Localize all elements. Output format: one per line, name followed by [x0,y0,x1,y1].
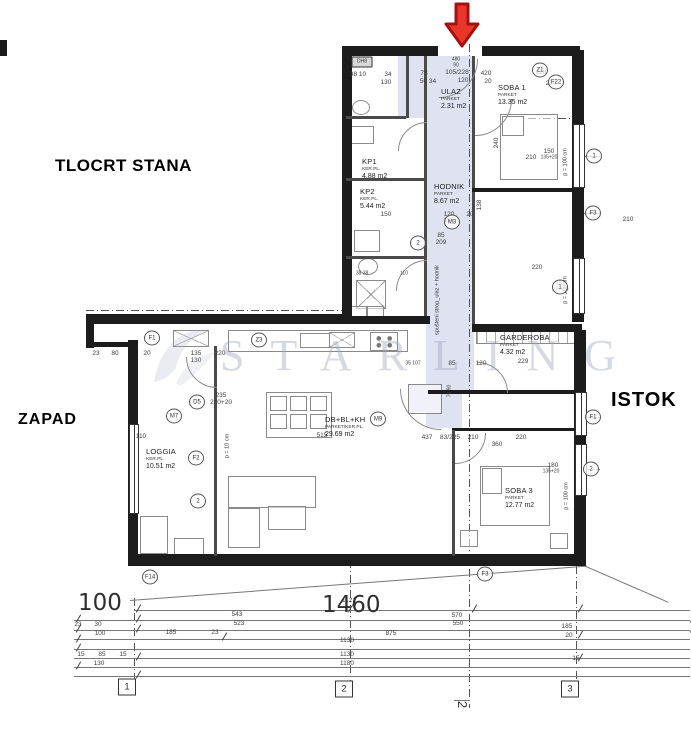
dimension-label: 15 [77,652,84,659]
wall [0,40,7,56]
dimension-label: 1130 [340,652,354,659]
room-name: LOGGIA [146,448,176,456]
dim-tick [136,652,141,660]
dimension-label: 210 [526,155,537,162]
wall [342,316,430,324]
plan-line [74,620,690,621]
dimension-label: 20 [466,212,473,219]
room-area: 13.35 m2 [498,99,527,106]
furniture [352,100,370,115]
plan-marker: F2 [188,451,204,466]
room-label: KP1KER.PL.4.88 m2 [362,158,387,180]
wall [342,46,438,56]
dimension-label: 210 [468,435,479,442]
furniture [140,516,168,554]
dimension-label: 120 [458,78,469,85]
grid-marker: 3 [561,681,579,698]
furniture [356,280,386,309]
section-mark: 2 [455,701,470,708]
furniture [228,476,316,508]
dimension-label: 360 [492,442,503,449]
wall [86,314,348,324]
room-label: LOGGIAKER.PL.10.51 m2 [146,448,176,470]
dimension-label: 130 [381,80,392,87]
dimension-label: 15 [119,652,126,659]
dimension-label: 150 [381,212,392,219]
dimension-label: 35 107 [405,362,420,367]
room-area: 2.31 m2 [441,103,466,110]
dimension-label: 220 [215,351,226,358]
room-material: PARKET [434,192,464,197]
furniture [350,126,374,144]
dim-tick [76,661,81,669]
floor-plan: TLOCRT STANA ZAPAD ISTOK STARLING 100 14… [0,0,691,743]
furniture [300,333,330,348]
room-name: DB+BL+KH [325,416,365,424]
furniture [370,332,398,351]
room-label: HODNIKPARKET8.67 m2 [434,183,464,205]
entrance-arrow [443,2,481,48]
dimension-label: 110 [136,434,146,441]
grid-marker: 2 [335,681,353,698]
dimension-label: 120 [476,361,487,368]
room-name: KP2 [360,188,385,196]
dimension-label: 138 [477,200,484,211]
dimension-label: 135+20 [541,156,558,161]
room-label: SOBA 3PARKET12.77 m2 [505,487,534,509]
dimension-label: 437 [422,435,433,442]
dimension-label: 34 [384,72,391,79]
wall [86,342,132,347]
dimension-label: 100 [95,631,106,638]
furniture [310,396,327,411]
dimension-label: 23 [92,351,99,358]
plan-marker: 1 [552,280,568,295]
room-material: KER.PL. [362,167,387,172]
dimension-label: 73 [420,71,427,78]
dimension-label: 30 [94,622,101,629]
dimension-label: 220+20 [210,400,232,407]
dimension-label: 220 [532,265,543,272]
room-material: KER.PL. [360,197,385,202]
dimension-label: 210 [623,217,634,224]
dim-tick [578,604,583,612]
entrance-arrow-shape [446,4,478,46]
furniture [460,530,478,547]
dimension-label: 550 [453,621,464,628]
dimension-label: 110 [400,272,408,277]
plan-line [74,667,690,668]
plan-marker: F3 [477,567,493,582]
room-name: HODNIK [434,183,464,191]
dimension-label: 23 [211,630,218,637]
plan-marker: Z1 [532,63,548,78]
dimension-label: 130 [191,358,202,365]
room-name: SOBA 3 [505,487,534,495]
room-label: SOBA 1PARKET13.35 m2 [498,84,527,106]
plan-marker: F3 [585,206,601,221]
dim-tick [136,604,141,612]
room-name: GARDEROBA [500,334,550,342]
room-material: KER.PL. [146,457,176,462]
dimension-label: 85 [448,361,455,368]
dimension-label: 220 [516,435,527,442]
plan-marker: M9 [370,412,386,427]
furniture [268,506,306,530]
dimension-label: 543 [232,612,243,619]
vertical-text: p = 100 cm [564,482,570,509]
wall [482,46,580,56]
grid-marker: 1 [118,679,136,696]
east-label: ISTOK [611,389,677,412]
plan-line [134,610,690,611]
room-area: 5.44 m2 [360,203,385,210]
wall [406,56,409,118]
room-label: DB+BL+KHPARKET/KER.PL.29.69 m2 [325,416,365,438]
room-name: SOBA 1 [498,84,527,92]
plan-line [469,44,470,708]
furniture [354,230,380,252]
dimension-label: 185 [166,630,177,637]
vertical-text: p = 10 cm [225,434,231,458]
dimension-label: 1130 [340,638,354,645]
plan-line [74,639,690,640]
vertical-text: spušteni strop_ulaz + hodnik [435,265,441,335]
wall [346,116,406,119]
dimension-label: 70 90 [448,385,453,398]
dimension-label: 38 38 [356,272,369,277]
furniture [270,396,287,411]
dimension-label: 38 10 [350,72,366,79]
dim-tick [578,630,583,638]
dim-tick [136,670,141,678]
room-area: 4.32 m2 [500,349,550,356]
wall [472,188,580,192]
plan-marker: F22 [548,75,564,90]
plan-line [74,658,690,659]
dimension-label: 83/225 [440,435,460,442]
hallway-tint [398,56,426,118]
vertical-text: p = 100 cm [563,148,569,175]
dim-tick [136,614,141,622]
dimension-label: 15 [572,656,579,663]
wall [346,256,426,259]
room-area: 4.88 m2 [362,173,387,180]
dimension-label: 209 [436,240,447,247]
furniture [290,414,307,429]
plan-marker: 2 [190,494,206,509]
dimension-label: 50 34 [420,79,436,86]
plan-marker: F1 [585,410,601,425]
furniture [270,414,287,429]
furniture [550,533,568,549]
wall [452,428,582,431]
dimension-label: 80 [111,351,118,358]
furniture [329,332,355,348]
wall [342,46,352,324]
dimension-label: 135+20 [543,470,560,475]
dimension-label: 875 [386,631,397,638]
plan-marker: M3 [444,215,460,230]
furniture [228,508,260,548]
furniture [173,330,209,347]
room-name: ULAZ [441,88,466,96]
plan-marker: DH8 [352,57,373,68]
wall [128,554,586,566]
window [573,124,585,188]
wall [472,324,582,332]
plan-marker: F14 [142,570,158,585]
plan-marker: Z3 [251,333,267,348]
furniture [290,396,307,411]
room-material: PARKET [500,343,550,348]
dimension-label: 90 [453,64,459,69]
plan-line [74,649,690,650]
plan-line [576,566,577,690]
dimension-label: 105/228 [445,70,469,77]
room-material: PARKET [441,97,466,102]
dimension-label: 20 [484,79,491,86]
room-label: ULAZPARKET2.31 m2 [441,88,466,110]
plan-line [586,566,669,603]
dim-tick [136,624,141,632]
plan-title: TLOCRT STANA [55,156,192,176]
dimension-label: 229 [518,359,529,366]
dimension-label: 185 [562,624,573,631]
dimension-total-left: 100 [78,590,122,616]
furniture [482,468,502,494]
window [573,258,585,314]
room-area: 29.69 m2 [325,431,365,438]
dimension-label: 85 [98,652,105,659]
room-area: 10.51 m2 [146,463,176,470]
dimension-label: 240 [494,138,501,149]
room-area: 12.77 m2 [505,502,534,509]
room-label: KP2KER.PL.5.44 m2 [360,188,385,210]
dim-tick [472,604,477,612]
dimension-total-main: 1460 [322,592,381,618]
plan-marker: 2 [410,236,426,251]
dimension-label: 23 [74,622,81,629]
dimension-label: 1180 [340,661,354,668]
plan-line [350,560,351,690]
room-name: KP1 [362,158,387,166]
dimension-label: 20 [143,351,150,358]
dimension-label: 523 [234,621,245,628]
plan-line [74,676,690,677]
room-label: GARDEROBAPARKET4.32 m2 [500,334,550,356]
dimension-label: 20 [565,633,572,640]
west-label: ZAPAD [18,411,77,429]
dimension-label: 130 [94,661,105,668]
room-material: PARKET [505,496,534,501]
plan-line [86,310,348,311]
room-area: 8.67 m2 [434,198,464,205]
plan-marker: M7 [166,409,182,424]
plan-marker: D5 [189,395,205,410]
wall [452,430,455,556]
room-material: PARKET [498,93,527,98]
dimension-label: 570 [452,613,463,620]
plan-marker: 1 [586,149,602,164]
plan-marker: F1 [144,331,160,346]
room-material: PARKET/KER.PL. [325,425,365,430]
dimension-label: 420 [481,71,492,78]
plan-marker: 2 [583,462,599,477]
